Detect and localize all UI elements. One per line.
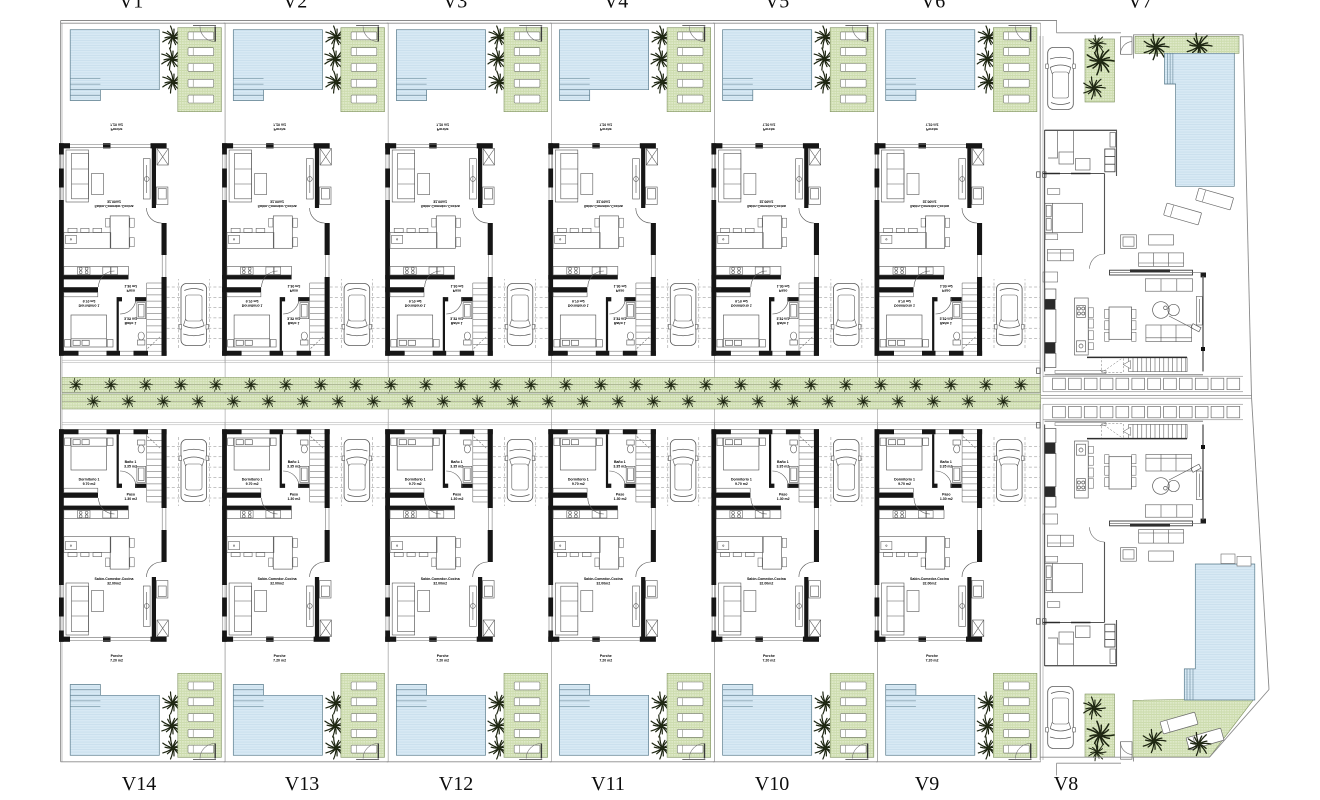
svg-text:V10: V10 <box>755 773 789 795</box>
svg-text:V2: V2 <box>283 0 307 13</box>
svg-text:V5: V5 <box>765 0 789 13</box>
svg-text:V13: V13 <box>285 773 319 795</box>
svg-text:V11: V11 <box>591 773 625 795</box>
svg-text:V4: V4 <box>604 0 628 13</box>
svg-text:V6: V6 <box>921 0 945 13</box>
svg-text:V14: V14 <box>122 773 156 795</box>
svg-text:V8: V8 <box>1054 773 1078 795</box>
svg-text:V1: V1 <box>119 0 143 13</box>
svg-text:V3: V3 <box>443 0 467 13</box>
svg-text:V12: V12 <box>439 773 473 795</box>
svg-text:V9: V9 <box>915 773 939 795</box>
svg-text:V7: V7 <box>1128 0 1152 13</box>
